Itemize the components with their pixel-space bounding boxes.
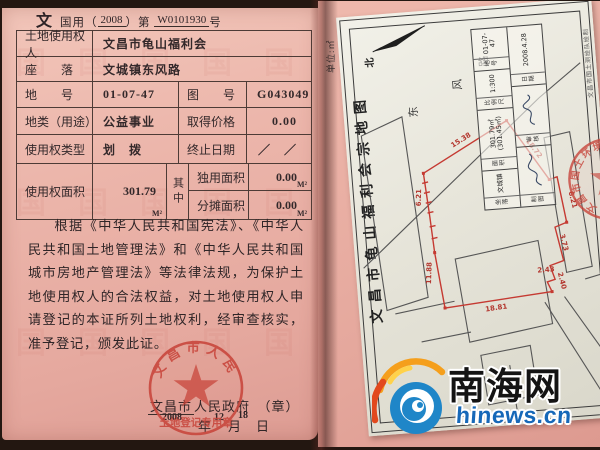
dim-label: 6.21: [415, 189, 423, 206]
map-field-value: 1:300: [475, 69, 511, 98]
serial-number: W0101930: [154, 14, 209, 27]
photographed-land-certificate: 国国国国国国国国国国国国国国国 文 国用（2008）第 W0101930号 土地…: [0, 0, 600, 450]
map-field-value: 301.79㎡ (301.45㎡): [478, 108, 516, 159]
certificate-page: 国国国国国国国国国国国国国国国 文 国用（2008）第 W0101930号 土地…: [2, 8, 318, 440]
field-label: 取得价格: [179, 108, 247, 135]
sub-area-unit: M²: [297, 180, 307, 189]
nanhai-swirl-logo-icon: [372, 354, 456, 444]
field-label: 独用面积: [189, 164, 249, 191]
field-value: 文城镇东风路: [93, 57, 311, 82]
field-label: 座 落: [17, 57, 93, 82]
government-seal: 文昌市人民政府 土地登记专用章: [146, 338, 246, 438]
sub-area-number: 0.00: [276, 198, 297, 213]
field-value: 01-07-47: [93, 82, 179, 108]
serial-suffix: 号: [209, 17, 222, 29]
field-value: 文昌市龟山福利会: [93, 31, 311, 57]
legal-paragraph: 根据《中华人民共和国宪法》、《中华人民共和国土地管理法》和《中华人民共和国城市房…: [28, 214, 304, 355]
field-label: 使用权面积: [17, 164, 93, 219]
page-gutter-shadow: [310, 0, 338, 450]
field-value: 301.79 M²: [93, 164, 167, 219]
field-label: 图 号: [179, 82, 247, 108]
certificate-table: 土地使用权人 文昌市龟山福利会 座 落 文城镇东风路 地 号 01-07-47 …: [16, 30, 312, 220]
field-value: ／ ／: [247, 135, 311, 164]
field-label: 地类（用途）: [17, 108, 93, 135]
dim-label: 11.88: [425, 262, 434, 284]
map-title-block: 坐落 文城镇 面积 301.79㎡ (301.45㎡) 比例尺 1:300 地号…: [470, 24, 556, 211]
news-site-watermark: 南海网 hinews.cn: [372, 350, 600, 448]
signature: [511, 85, 549, 135]
signature: [516, 145, 554, 195]
map-field-value: 01-07-47: [471, 27, 508, 59]
serial-mid: ）第: [126, 17, 151, 29]
dim-label: 2.43: [537, 265, 555, 274]
issuer-seal-mark: （章）: [264, 399, 300, 414]
field-label: 其中: [167, 164, 189, 219]
field-label: 使用权类型: [17, 135, 93, 164]
area-number: 301.79: [123, 184, 156, 199]
map-field-value: 文城镇: [482, 169, 518, 198]
map-field-value: 2008.4.28: [507, 25, 545, 75]
seal-bottom-text: 土地登记专用章: [159, 416, 233, 429]
field-value: 公益事业: [93, 108, 179, 135]
field-value: G043049: [247, 82, 311, 108]
field-label: 地 号: [17, 82, 93, 108]
field-value: 划 拨: [93, 135, 179, 164]
field-label: 终止日期: [179, 135, 247, 164]
serial-year: 2008: [98, 14, 126, 27]
watermark-site-url: hinews.cn: [455, 402, 573, 429]
field-value: 0.00: [247, 108, 311, 135]
field-label: 土地使用权人: [17, 31, 93, 57]
day-label: 日: [256, 416, 269, 435]
field-value: 0.00 M²: [249, 164, 311, 191]
sub-area-number: 0.00: [276, 170, 297, 185]
